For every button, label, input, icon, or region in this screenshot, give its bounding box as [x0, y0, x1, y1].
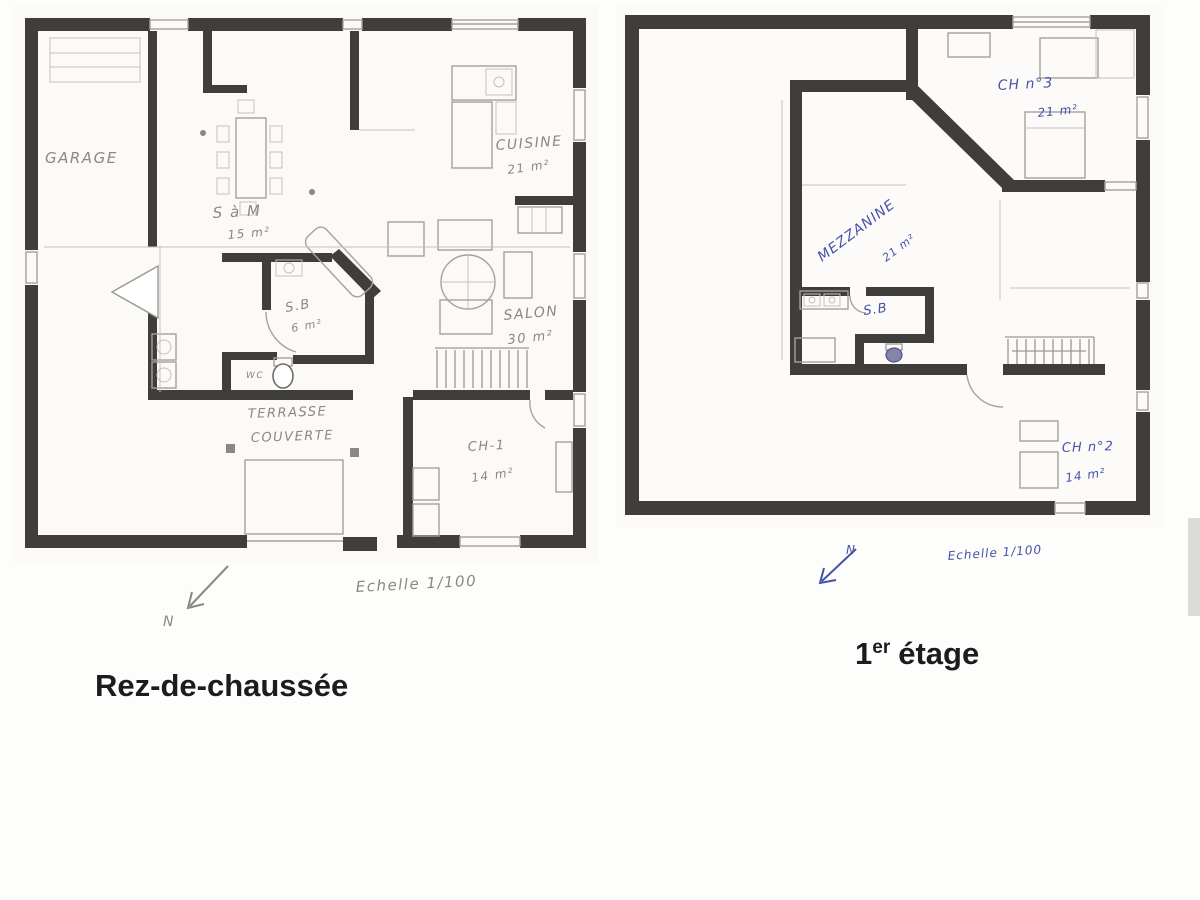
ground-floor-caption: Rez-de-chaussée: [95, 668, 348, 703]
terrace-post: [350, 448, 359, 457]
scale-label: Echelle 1/100: [355, 572, 477, 596]
floor-plans-drawing: GARAGE S à M 15 m² CUISINE 21 m² SALON 3…: [0, 0, 1200, 900]
first-floor-annotations: N Echelle 1/100: [820, 542, 1043, 583]
garage-label: GARAGE: [45, 149, 118, 167]
caption-number: 1: [855, 636, 872, 671]
toilet: [273, 364, 293, 388]
ground-floor-annotations: N Echelle 1/100: [163, 566, 478, 630]
north-label: N: [163, 614, 175, 630]
bedroom2-label: CH n°2: [1062, 439, 1114, 456]
floor-plan-scan: GARAGE S à M 15 m² CUISINE 21 m² SALON 3…: [0, 0, 1200, 900]
wc-label: WC: [246, 371, 264, 381]
caption-superscript: er: [872, 637, 891, 658]
scan-artifact-strip: [1188, 518, 1200, 616]
scale-label: Echelle 1/100: [947, 542, 1042, 563]
terrace-label-line1: TERRASSE: [248, 404, 328, 422]
caption-word: étage: [898, 636, 979, 671]
north-label: N: [846, 543, 856, 557]
dining-room-label: S à M: [212, 201, 262, 222]
first-floor-caption: 1erétage: [855, 636, 979, 671]
bedroom3-label: CH n°3: [997, 75, 1053, 94]
bedroom1-label: CH-1: [467, 438, 506, 455]
toilet: [886, 348, 902, 362]
terrace-post: [226, 444, 235, 453]
terrace-label-line2: COUVERTE: [251, 428, 335, 446]
